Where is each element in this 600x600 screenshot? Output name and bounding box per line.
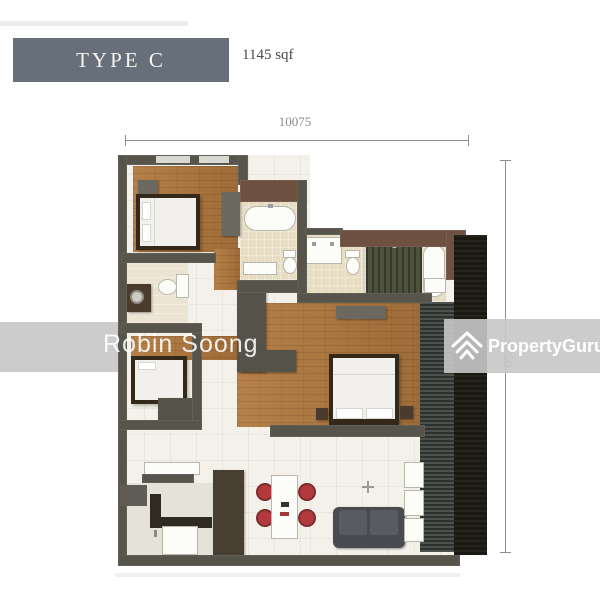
- bedroom3-pillow: [138, 362, 156, 370]
- unit-area-label: 1145 sqf: [242, 47, 294, 64]
- master-pillow-2: [366, 408, 393, 419]
- kitchen-tap-icon: [154, 530, 157, 537]
- wall-bathroom1-bottom: [237, 280, 299, 293]
- balcony-planter-1: [404, 462, 424, 488]
- master-nightstand-left: [316, 408, 328, 420]
- bathtub-faucet-icon: [268, 204, 273, 208]
- watermark-photographer: Robin Soong: [103, 330, 259, 359]
- shower-floor: [366, 240, 422, 300]
- balcony-planter-2: [404, 490, 424, 516]
- wall-masterbath-top: [305, 228, 343, 235]
- dining-table: [271, 475, 298, 539]
- wall-bottom-outer: [118, 555, 460, 566]
- bedroom3-bed: [131, 356, 187, 404]
- bathroom1-bathtub: [244, 206, 296, 231]
- wall-masterbath-back: [340, 230, 455, 247]
- wall-masterbath-bottom: [297, 293, 432, 303]
- bathroom1-vanity: [243, 262, 277, 275]
- top-accent-bar: [0, 21, 188, 26]
- master-bed: [329, 354, 399, 426]
- balcony-planter-3: [404, 518, 424, 542]
- watermark-brand-name: PropertyGuru: [488, 336, 600, 357]
- dining-table-item-1: [281, 502, 289, 507]
- dimension-line-top: [125, 140, 468, 141]
- wall-bedroom3-bottom: [118, 420, 202, 430]
- dimension-tick-bottom: [500, 552, 511, 553]
- bedroom2-closet: [222, 192, 240, 236]
- wall-kitchen-return: [120, 485, 147, 506]
- watermark-brand-box: PropertyGuru: [444, 319, 600, 373]
- bathroom3-sink: [130, 290, 144, 304]
- kitchen-sink-island: [162, 526, 198, 555]
- dining-chair-3: [298, 483, 316, 501]
- floorplan-image: TYPE C 1145 sqf 10075 9750: [0, 0, 600, 600]
- sofa-cushion-2: [370, 510, 398, 535]
- wall-right-outer: [454, 235, 487, 555]
- watermark-strip-left: [0, 322, 118, 372]
- shower-glass-panel: [363, 240, 365, 298]
- wall-bathroom1-back: [240, 180, 305, 202]
- unit-type-badge: TYPE C: [13, 38, 229, 82]
- floor-lamp-icon-bar: [367, 481, 369, 493]
- bedroom2-pillow-1: [142, 202, 151, 220]
- dimension-tick-right: [468, 135, 469, 146]
- wall-master-living-divider: [270, 425, 425, 437]
- bedroom2-pillow-2: [142, 224, 151, 242]
- dimension-tick-top: [500, 160, 511, 161]
- living-sofa: [333, 507, 405, 548]
- window-top-1: [156, 156, 190, 163]
- bedroom2-duvet-line: [154, 198, 155, 246]
- master-nightstand-right: [400, 406, 413, 419]
- propertyguru-chevron-icon: [450, 329, 484, 363]
- vanity-faucet-right-icon: [330, 242, 334, 246]
- bathroom3-toilet-bowl: [158, 279, 177, 295]
- wall-kitchen-top: [142, 474, 194, 483]
- unit-type-label: TYPE C: [76, 48, 166, 73]
- bedroom2-bed: [136, 194, 200, 250]
- ac-unit: [424, 278, 446, 293]
- dining-table-item-2: [280, 512, 289, 516]
- dimension-width-value: 10075: [240, 114, 350, 130]
- master-pillow-1: [336, 408, 363, 419]
- window-top-2: [199, 156, 229, 163]
- bathroom3-toilet-tank: [176, 274, 189, 298]
- wall-bedroom2-bottom: [121, 253, 216, 263]
- sofa-cushion-1: [339, 510, 367, 535]
- bathroom1-toilet-bowl: [283, 257, 297, 274]
- dimension-tick-left: [125, 135, 126, 146]
- bedroom3-dresser: [158, 398, 192, 420]
- vanity-faucet-left-icon: [312, 242, 316, 246]
- master-bench: [336, 306, 386, 319]
- master-duvet-line: [333, 374, 395, 375]
- kitchen-tall-cabinet: [213, 470, 244, 556]
- master-toilet-bowl: [346, 257, 360, 275]
- dining-chair-4: [298, 509, 316, 527]
- plan-drop-shadow: [115, 573, 460, 577]
